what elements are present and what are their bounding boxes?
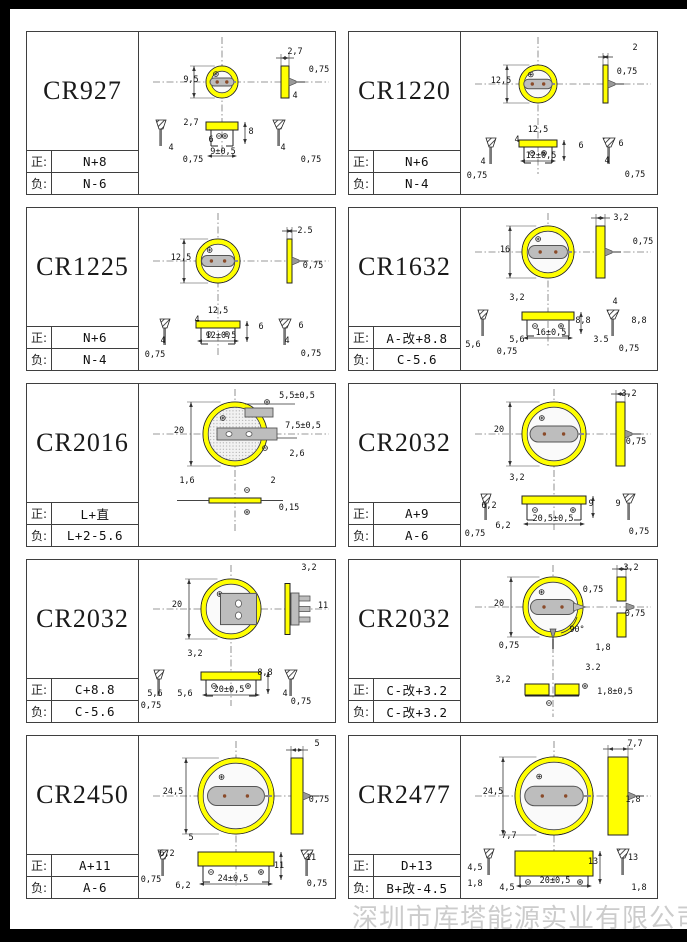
dim-label: 13 (628, 853, 638, 863)
dim-label: 20 (494, 599, 504, 609)
dim-label: 5 (188, 833, 193, 843)
dim-label: 3.5 (593, 335, 608, 345)
dim-label: 6 (618, 139, 623, 149)
dim-label: 4 (282, 689, 287, 699)
dim-label: 16±0,5 (536, 328, 567, 338)
model-name: CR1632 (349, 208, 460, 326)
positive-terminal-row: 正:N+6 (349, 150, 460, 172)
model-name: CR1225 (27, 208, 138, 326)
battery-drawing-svg: 2,70,759,542,769±0,580,75440,75 (139, 32, 334, 193)
negative-label: 负: (27, 701, 52, 722)
dim-label: 0,75 (626, 437, 646, 447)
negative-label: 负: (27, 525, 52, 546)
dim-label: 6,2 (159, 849, 174, 859)
negative-label: 负: (349, 525, 374, 546)
positive-label: 正: (27, 151, 52, 172)
negative-spec-value: C-改+3.2 (374, 701, 460, 722)
dim-label: 0,75 (497, 347, 517, 357)
dim-label: 3,2 (621, 389, 636, 399)
top-border-bar (0, 0, 687, 9)
dim-label: 2 (270, 476, 275, 486)
dim-label: 11 (274, 861, 284, 871)
dim-label: 4 (480, 157, 485, 167)
negative-terminal-row: 负:C-5.6 (27, 700, 138, 722)
dim-label: 2.5 (297, 226, 312, 236)
dim-label: 0,75 (291, 697, 311, 707)
dim-label: 4 (612, 297, 617, 307)
dim-label: 6,2 (495, 521, 510, 531)
negative-terminal-row: 负:A-6 (27, 876, 138, 898)
dim-label: 1,8 (631, 883, 646, 893)
dim-label: 3,2 (623, 563, 638, 573)
dim-label: 24±0,5 (218, 874, 249, 884)
positive-label: 正: (349, 503, 374, 524)
dim-label: 0,75 (625, 609, 645, 619)
dim-label: 0,75 (309, 65, 329, 75)
dim-label: 0,75 (301, 155, 321, 165)
dim-label: 7,7 (501, 831, 516, 841)
negative-label: 负: (349, 349, 374, 370)
dim-label: 13 (588, 857, 598, 867)
spec-cell-cr1632-3: CR1632正:A-改+8.8负:C-5.63,20,75163,25,60,7… (348, 207, 658, 371)
dim-label: 5,6 (509, 335, 524, 345)
model-name: CR2477 (349, 736, 460, 854)
dim-label: 1,8 (467, 879, 482, 889)
dim-label: 0,75 (141, 701, 161, 711)
dimension-drawing: 3,20,75203,26,26,220,5±0,5990,750,75 (461, 384, 657, 546)
dim-label: 4 (168, 143, 173, 153)
model-name-box: CR2032正:A+9负:A-6 (349, 384, 461, 546)
battery-drawing-svg: 2.50,7512,512,5412±0,5640,75640,75 (139, 208, 334, 369)
dim-label: 6 (208, 135, 213, 145)
dim-label: 2 (632, 43, 637, 53)
dim-label: 5 (314, 739, 319, 749)
negative-spec-value: C-5.6 (374, 349, 460, 370)
negative-label: 负: (27, 877, 52, 898)
dim-label: 7,7 (627, 739, 642, 749)
dim-label: 0,15 (279, 503, 299, 513)
dim-label: 0,75 (465, 529, 485, 539)
spec-cell-cr2477-9: CR2477正:D+13负:B+改-4.57,724,51,87,74,51,8… (348, 735, 658, 899)
model-name-box: CR2032正:C+8.8负:C-5.6 (27, 560, 139, 722)
dimension-drawing: 2.50,7512,512,5412±0,5640,75640,75 (139, 208, 335, 370)
model-name: CR2032 (349, 384, 460, 502)
dim-label: 0,75 (499, 641, 519, 651)
dim-label: 2,6 (289, 449, 304, 459)
dim-label: 4 (284, 336, 289, 346)
negative-spec-value: B+改-4.5 (374, 877, 460, 898)
model-name: CR927 (27, 32, 138, 150)
dim-label: 9 (588, 499, 593, 509)
datasheet-page: CR927正:N+8负:N-62,70,759,542,769±0,580,75… (0, 0, 687, 942)
dim-label: 0,75 (583, 585, 603, 595)
model-name: CR2032 (349, 560, 460, 678)
negative-terminal-row: 负:B+改-4.5 (349, 876, 460, 898)
negative-terminal-row: 负:C-改+3.2 (349, 700, 460, 722)
dim-label: 8,8 (257, 668, 272, 678)
dim-label: 3,2 (301, 563, 316, 573)
dim-label: 0,75 (303, 261, 323, 271)
negative-terminal-row: 负:N-6 (27, 172, 138, 194)
negative-label: 负: (349, 701, 374, 722)
dim-label: 1,8±0,5 (597, 687, 633, 697)
negative-spec-value: N-4 (52, 349, 138, 370)
dim-label: 0,75 (617, 67, 637, 77)
positive-terminal-row: 正:N+6 (27, 326, 138, 348)
dim-label: 24,5 (483, 787, 503, 797)
dim-label: 3,2 (495, 675, 510, 685)
dim-label: 0,75 (141, 875, 161, 885)
dim-label: 12,5 (528, 125, 548, 135)
dim-label: 20 (172, 600, 182, 610)
spec-cell-cr2032-5: CR2032正:A+9负:A-63,20,75203,26,26,220,5±0… (348, 383, 658, 547)
battery-drawing-svg: 7,724,51,87,74,51,84,520±0,513131,8 (461, 736, 656, 897)
dim-label: 7,5±0,5 (285, 421, 321, 431)
negative-spec-value: A-6 (52, 877, 138, 898)
positive-label: 正: (349, 679, 374, 700)
dim-label: 16 (500, 245, 510, 255)
dim-label: 6,2 (175, 881, 190, 891)
dim-label: 20,5±0,5 (533, 514, 574, 524)
dim-label: 4 (280, 143, 285, 153)
dim-label: 0,75 (619, 344, 639, 354)
spec-cell-cr927-0: CR927正:N+8负:N-62,70,759,542,769±0,580,75… (26, 31, 336, 195)
negative-label: 负: (349, 877, 374, 898)
dim-label: 4 (514, 135, 519, 145)
model-name-box: CR927正:N+8负:N-6 (27, 32, 139, 194)
positive-label: 正: (349, 327, 374, 348)
negative-terminal-row: 负:N-4 (349, 172, 460, 194)
dimension-drawing: 3,20,75163,25,60,755,616±0,58,848,83.50,… (461, 208, 657, 370)
model-name: CR2450 (27, 736, 138, 854)
battery-drawing-svg: 3,20,75163,25,60,755,616±0,58,848,83.50,… (461, 208, 656, 369)
dim-label: 0,75 (301, 349, 321, 359)
spec-cell-cr2450-8: CR2450正:A+11负:A-6524,50,7556,20,756,224±… (26, 735, 336, 899)
positive-terminal-row: 正:N+8 (27, 150, 138, 172)
positive-spec-value: A-改+8.8 (374, 327, 460, 348)
dim-label: 4,5 (467, 863, 482, 873)
positive-spec-value: A+11 (52, 855, 138, 876)
dim-label: 0,75 (183, 155, 203, 165)
dim-label: 0,75 (145, 350, 165, 360)
dimension-drawing: 3,211203,25,65,620±0,58,840,750,75 (139, 560, 335, 722)
positive-terminal-row: 正:C+8.8 (27, 678, 138, 700)
spec-cell-cr2032-7: CR2032正:C-改+3.2负:C-改+3.23,2200,750,7590°… (348, 559, 658, 723)
dim-label: 0,75 (633, 237, 653, 247)
positive-terminal-row: 正:A+11 (27, 854, 138, 876)
negative-spec-value: C-5.6 (52, 701, 138, 722)
positive-terminal-row: 正:A+9 (349, 502, 460, 524)
dim-label: 9 (615, 499, 620, 509)
negative-label: 负: (27, 173, 52, 194)
dim-label: 1,6 (179, 476, 194, 486)
dim-label: 4 (604, 156, 609, 166)
positive-label: 正: (349, 855, 374, 876)
dim-label: 9,5 (183, 75, 198, 85)
battery-drawing-svg: 205,5±0,57,5±0,52,61,620,15 (139, 384, 334, 545)
dim-label: 4,5 (499, 883, 514, 893)
positive-spec-value: C-改+3.2 (374, 679, 460, 700)
dim-label: 6 (298, 321, 303, 331)
dim-label: 4 (160, 336, 165, 346)
dimension-drawing: 20,7512,512,5412±0,5640,75640,75 (461, 32, 657, 194)
dim-label: 12±0,5 (206, 331, 237, 341)
dim-label: 5,6 (177, 689, 192, 699)
dim-label: 1,8 (595, 643, 610, 653)
dimension-drawing: 2,70,759,542,769±0,580,75440,75 (139, 32, 335, 194)
dim-label: 3,2 (509, 293, 524, 303)
dim-label: 4 (292, 91, 297, 101)
dim-label: 20 (494, 425, 504, 435)
dim-label: 5,5±0,5 (279, 391, 315, 401)
dim-label: 0,75 (307, 879, 327, 889)
model-name-box: CR1220正:N+6负:N-4 (349, 32, 461, 194)
dim-label: 0,75 (309, 795, 329, 805)
spec-cell-cr1220-1: CR1220正:N+6负:N-420,7512,512,5412±0,5640,… (348, 31, 658, 195)
dim-label: 11 (318, 601, 328, 611)
positive-spec-value: D+13 (374, 855, 460, 876)
spec-cell-cr2032-6: CR2032正:C+8.8负:C-5.63,211203,25,65,620±0… (26, 559, 336, 723)
dimension-drawing: 524,50,7556,20,756,224±0,511110,75 (139, 736, 335, 898)
dim-label: 90° (569, 625, 584, 635)
dim-label: 6 (258, 322, 263, 332)
model-name-box: CR2450正:A+11负:A-6 (27, 736, 139, 898)
negative-terminal-row: 负:A-6 (349, 524, 460, 546)
dim-label: 3,2 (613, 213, 628, 223)
dim-label: 12,5 (208, 306, 228, 316)
spec-cell-cr1225-2: CR1225正:N+6负:N-42.50,7512,512,5412±0,564… (26, 207, 336, 371)
dim-label: 4 (194, 315, 199, 325)
dim-label: 8,8 (631, 316, 646, 326)
positive-terminal-row: 正:A-改+8.8 (349, 326, 460, 348)
dim-label: 2,7 (287, 47, 302, 57)
positive-label: 正: (349, 151, 374, 172)
positive-spec-value: A+9 (374, 503, 460, 524)
positive-terminal-row: 正:D+13 (349, 854, 460, 876)
dimension-drawing: 205,5±0,57,5±0,52,61,620,15 (139, 384, 335, 546)
battery-drawing-svg: 20,7512,512,5412±0,5640,75640,75 (461, 32, 656, 193)
model-name-box: CR2032正:C-改+3.2负:C-改+3.2 (349, 560, 461, 722)
dim-label: 3.2 (585, 663, 600, 673)
negative-spec-value: N-6 (52, 173, 138, 194)
battery-drawing-svg: 3,211203,25,65,620±0,58,840,750,75 (139, 560, 334, 721)
model-name-box: CR2477正:D+13负:B+改-4.5 (349, 736, 461, 898)
negative-terminal-row: 负:L+2-5.6 (27, 524, 138, 546)
dimension-drawing: 3,2200,750,7590°0,751,83,23.21,8±0,5 (461, 560, 657, 722)
negative-spec-value: A-6 (374, 525, 460, 546)
dim-label: 6 (578, 141, 583, 151)
dim-label: 20 (174, 426, 184, 436)
dim-label: 9±0,5 (210, 147, 236, 157)
negative-label: 负: (27, 349, 52, 370)
model-name: CR1220 (349, 32, 460, 150)
dim-label: 0,75 (625, 170, 645, 180)
dim-label: 11 (306, 853, 316, 863)
positive-label: 正: (27, 503, 52, 524)
positive-spec-value: N+6 (52, 327, 138, 348)
dim-label: 6,2 (481, 501, 496, 511)
dim-label: 2,7 (183, 118, 198, 128)
dim-label: 5,6 (465, 340, 480, 350)
dim-label: 5,6 (147, 689, 162, 699)
dim-label: 0,75 (629, 527, 649, 537)
battery-drawing-svg: 3,2200,750,7590°0,751,83,23.21,8±0,5 (461, 560, 656, 721)
positive-label: 正: (27, 327, 52, 348)
positive-label: 正: (27, 855, 52, 876)
positive-terminal-row: 正:L+直 (27, 502, 138, 524)
dim-label: 12,5 (491, 76, 511, 86)
dim-label: 3,2 (187, 649, 202, 659)
battery-drawing-svg: 3,20,75203,26,26,220,5±0,5990,750,75 (461, 384, 656, 545)
model-name-box: CR1225正:N+6负:N-4 (27, 208, 139, 370)
negative-spec-value: L+2-5.6 (52, 525, 138, 546)
positive-spec-value: C+8.8 (52, 679, 138, 700)
model-name-box: CR1632正:A-改+8.8负:C-5.6 (349, 208, 461, 370)
negative-terminal-row: 负:C-5.6 (349, 348, 460, 370)
dim-label: 20±0,5 (540, 876, 571, 886)
negative-spec-value: N-4 (374, 173, 460, 194)
dim-label: 0,75 (467, 171, 487, 181)
dim-label: 12±0,5 (526, 151, 557, 161)
dim-label: 1,8 (625, 795, 640, 805)
positive-spec-value: N+6 (374, 151, 460, 172)
bottom-border-bar (0, 929, 687, 942)
dimension-drawing: 7,724,51,87,74,51,84,520±0,513131,8 (461, 736, 657, 898)
negative-label: 负: (349, 173, 374, 194)
model-name-box: CR2016正:L+直负:L+2-5.6 (27, 384, 139, 546)
positive-spec-value: N+8 (52, 151, 138, 172)
battery-drawing-svg: 524,50,7556,20,756,224±0,511110,75 (139, 736, 334, 897)
dim-label: 3,2 (509, 473, 524, 483)
dim-label: 8,8 (575, 316, 590, 326)
positive-label: 正: (27, 679, 52, 700)
positive-spec-value: L+直 (52, 503, 138, 524)
negative-terminal-row: 负:N-4 (27, 348, 138, 370)
model-name: CR2032 (27, 560, 138, 678)
spec-cell-cr2016-4: CR2016正:L+直负:L+2-5.6205,5±0,57,5±0,52,61… (26, 383, 336, 547)
dim-label: 24,5 (163, 787, 183, 797)
model-name: CR2016 (27, 384, 138, 502)
positive-terminal-row: 正:C-改+3.2 (349, 678, 460, 700)
left-border-bar (0, 0, 10, 942)
dim-label: 8 (248, 127, 253, 137)
dim-label: 12,5 (171, 253, 191, 263)
dim-label: 20±0,5 (214, 685, 245, 695)
